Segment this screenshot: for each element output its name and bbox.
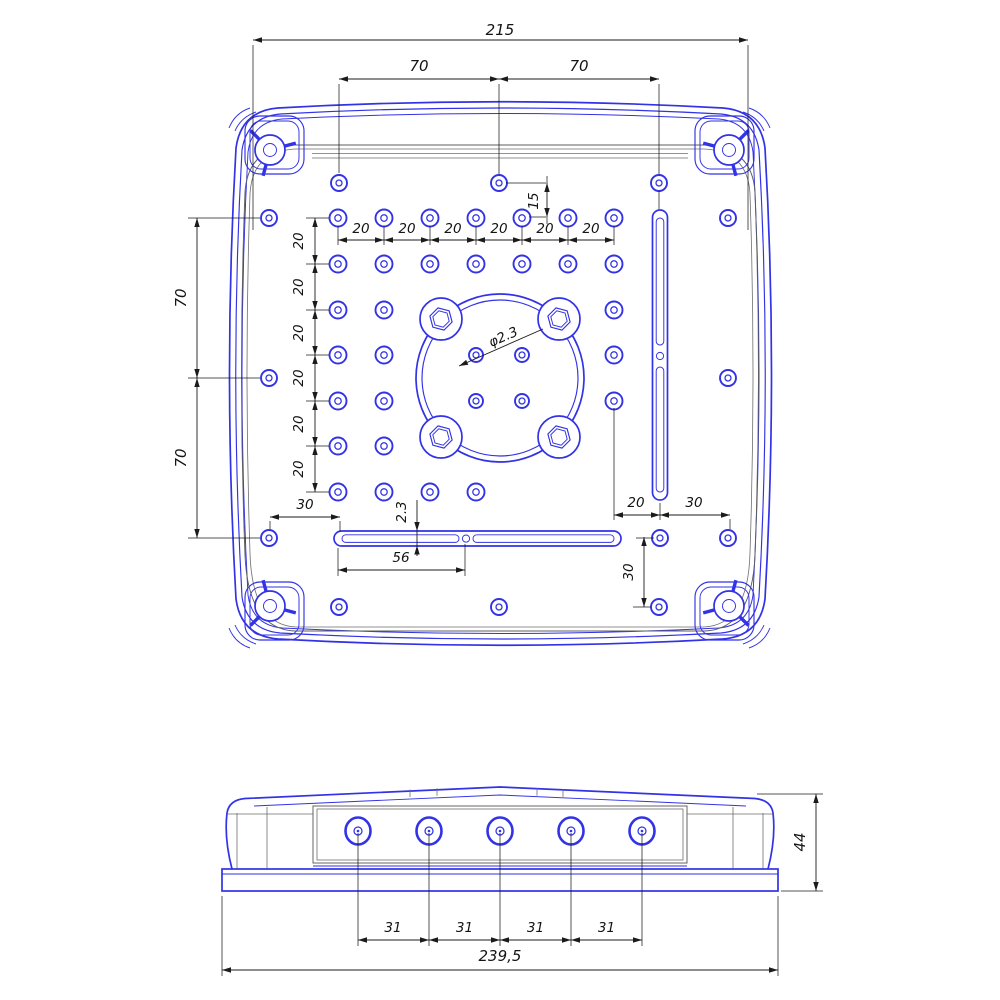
- mounting-hole: [514, 256, 531, 273]
- dim-top-offset: 15: [526, 192, 542, 209]
- dim-col-pitch-1: 20: [352, 221, 369, 237]
- mounting-hole: [376, 393, 393, 410]
- mounting-hole: [376, 438, 393, 455]
- hex-screw-boss: [420, 298, 462, 340]
- mounting-hole: [330, 210, 347, 227]
- mounting-hole: [330, 347, 347, 364]
- mounting-hole: [560, 256, 577, 273]
- mounting-hole: [606, 393, 623, 410]
- mounting-hole: [468, 256, 485, 273]
- dim-col-pitch-5: 20: [536, 221, 553, 237]
- dim-overall-width: 215: [486, 21, 515, 39]
- dim-gland-pitch-1: 31: [384, 920, 401, 936]
- mounting-hole: [720, 530, 736, 546]
- mounting-hole: [606, 347, 623, 364]
- center-flange: [416, 294, 584, 462]
- dim-top-pitch-left: 70: [409, 57, 428, 75]
- mounting-hole: [422, 256, 439, 273]
- dim-col-pitch-6: 20: [582, 221, 599, 237]
- dim-slot-width: 2.3: [394, 501, 410, 522]
- mounting-hole: [331, 175, 347, 191]
- dim-overall-length: 239,5: [479, 947, 522, 965]
- dim-col-pitch-3: 20: [444, 221, 461, 237]
- mounting-hole: [491, 175, 507, 191]
- mounting-hole: [376, 210, 393, 227]
- mounting-hole: [468, 484, 485, 501]
- mounting-hole: [261, 370, 277, 386]
- dim-row-pitch-4: 20: [291, 369, 307, 386]
- hex-screw-boss: [420, 416, 462, 458]
- dim-row-pitch-5: 20: [291, 415, 307, 432]
- mounting-hole: [515, 348, 529, 362]
- mounting-hole: [606, 256, 623, 273]
- cad-drawing-canvas: 215 70 70 15 20 20 20 20 20 20 20 20 20 …: [0, 0, 1000, 1000]
- mounting-hole: [515, 394, 529, 408]
- mounting-hole: [491, 599, 507, 615]
- mounting-hole: [376, 484, 393, 501]
- dim-slot-offset: 56: [392, 550, 409, 566]
- mounting-hole: [261, 530, 277, 546]
- mounting-hole: [330, 484, 347, 501]
- mounting-hole: [330, 438, 347, 455]
- mounting-hole: [468, 210, 485, 227]
- dim-bottom-offset: 30: [621, 563, 637, 580]
- dim-col-pitch-4: 20: [490, 221, 507, 237]
- mounting-hole: [422, 210, 439, 227]
- top-view-plan: [229, 102, 772, 648]
- mounting-hole: [469, 394, 483, 408]
- mounting-hole: [720, 370, 736, 386]
- hex-screw-boss: [538, 298, 580, 340]
- horizontal-slot: [334, 531, 621, 546]
- mounting-hole: [651, 599, 667, 615]
- flange-hex-bosses: [420, 298, 580, 458]
- dim-gland-pitch-3: 31: [527, 920, 544, 936]
- flange-center-holes: [469, 348, 529, 408]
- mounting-hole: [330, 256, 347, 273]
- dim-gland-pitch-2: 31: [456, 920, 473, 936]
- dim-gland-pitch-4: 31: [598, 920, 615, 936]
- mounting-hole: [652, 530, 668, 546]
- dim-top-pitch-right: 70: [569, 57, 588, 75]
- dim-row-pitch-6: 20: [291, 460, 307, 477]
- mounting-hole: [606, 302, 623, 319]
- mounting-hole: [469, 348, 483, 362]
- dim-corner-offset: 30: [296, 497, 313, 513]
- mounting-hole: [331, 599, 347, 615]
- mounting-hole: [376, 302, 393, 319]
- mounting-hole: [422, 484, 439, 501]
- mounting-hole: [261, 210, 277, 226]
- mounting-hole: [330, 393, 347, 410]
- mounting-hole: [720, 210, 736, 226]
- mounting-hole: [376, 256, 393, 273]
- dim-slot-to-grid: 20: [627, 495, 644, 511]
- hex-screw-boss: [538, 416, 580, 458]
- dim-overall-height: 44: [791, 832, 809, 851]
- mounting-hole: [376, 347, 393, 364]
- vertical-slot: [653, 210, 668, 500]
- mounting-hole: [514, 210, 531, 227]
- dim-row-pitch-2: 20: [291, 278, 307, 295]
- mounting-hole: [651, 175, 667, 191]
- mounting-hole: [560, 210, 577, 227]
- dim-side-pitch-top: 70: [172, 288, 190, 307]
- dim-slot-to-side: 30: [685, 495, 702, 511]
- mounting-hole: [330, 302, 347, 319]
- dim-row-pitch-1: 20: [291, 232, 307, 249]
- lid-step-lines: [312, 154, 688, 159]
- dim-side-pitch-bottom: 70: [172, 448, 190, 467]
- dim-row-pitch-3: 20: [291, 324, 307, 341]
- dim-col-pitch-2: 20: [398, 221, 415, 237]
- mounting-hole: [606, 210, 623, 227]
